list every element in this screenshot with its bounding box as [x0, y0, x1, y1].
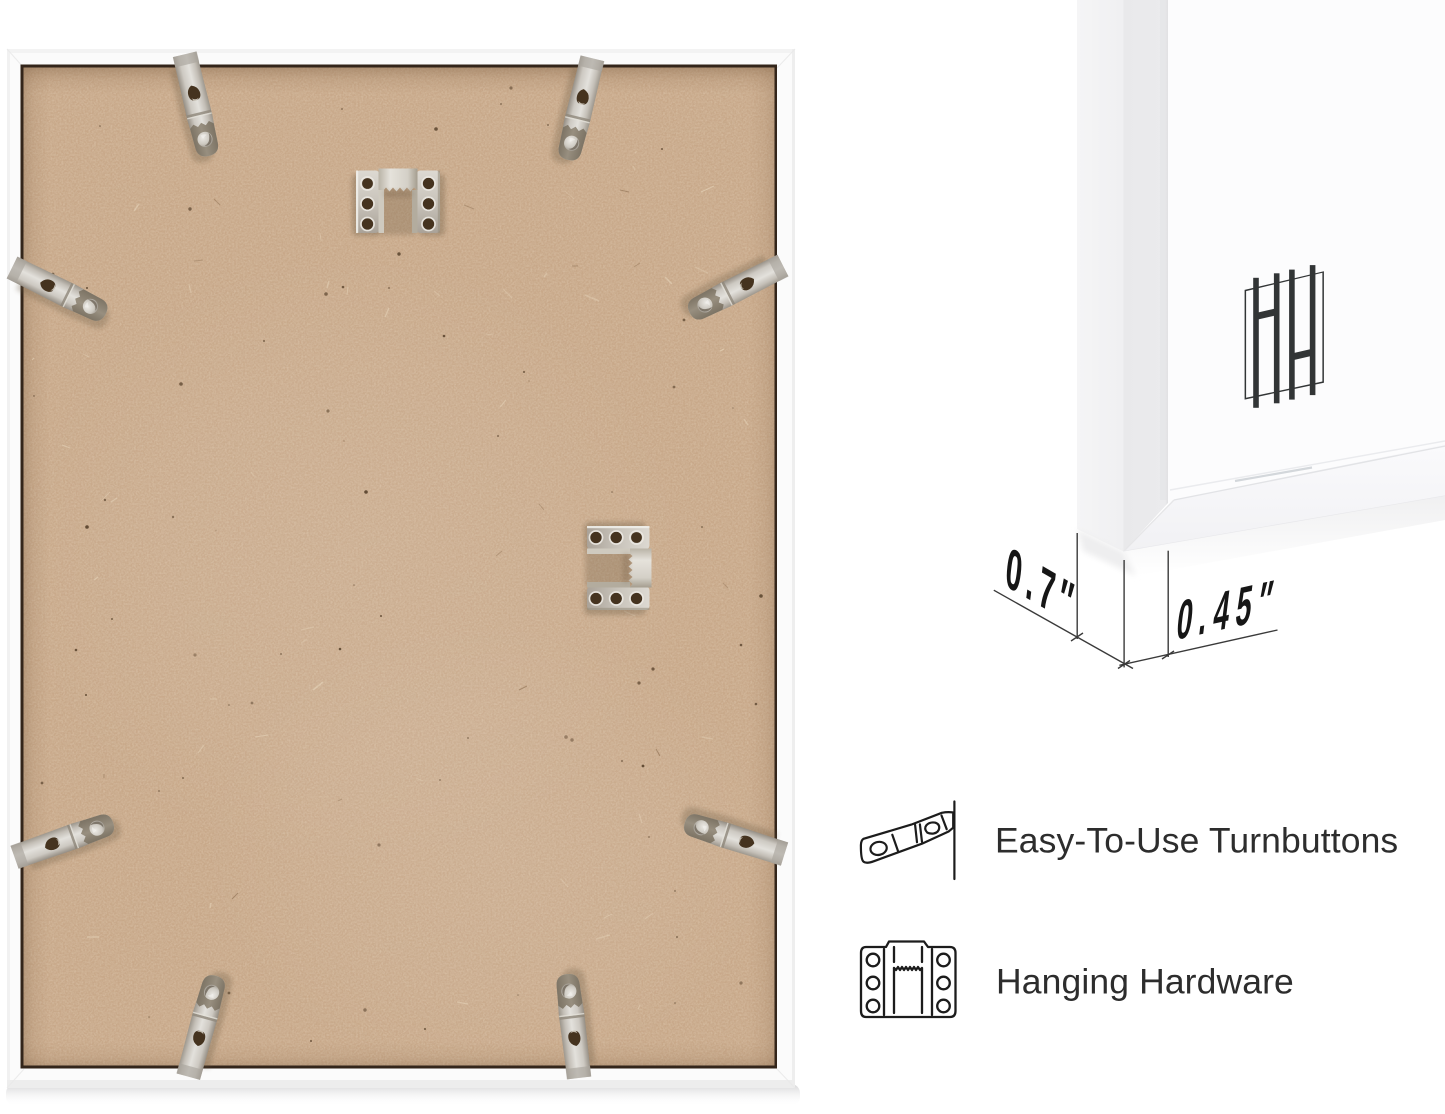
svg-text:Hanging Hardware: Hanging Hardware — [996, 962, 1294, 1002]
svg-text:Easy-To-Use Turnbuttons: Easy-To-Use Turnbuttons — [995, 821, 1398, 861]
